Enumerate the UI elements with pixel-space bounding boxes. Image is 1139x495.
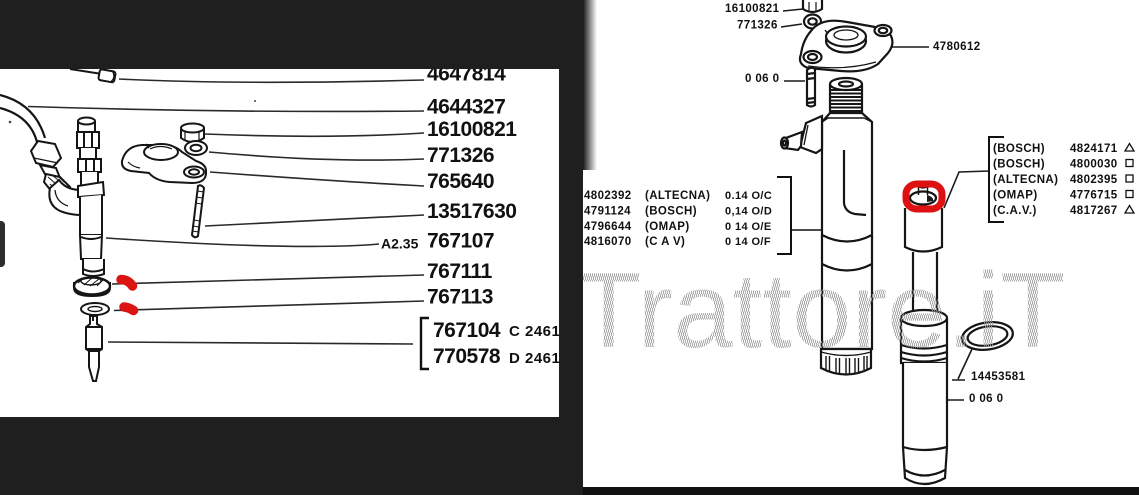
svg-text:771326: 771326	[427, 144, 494, 167]
svg-text:767104: 767104	[433, 319, 501, 342]
svg-text:4816070: 4816070	[584, 236, 632, 248]
svg-text:(C.A.V.): (C.A.V.)	[993, 205, 1037, 217]
svg-text:(ALTECNA): (ALTECNA)	[993, 174, 1058, 186]
svg-text:16100821: 16100821	[725, 3, 780, 15]
svg-text:767111: 767111	[427, 260, 493, 283]
svg-text:4802395: 4802395	[1070, 174, 1118, 186]
svg-text:(OMAP): (OMAP)	[993, 190, 1038, 202]
svg-text:4780612: 4780612	[933, 41, 981, 53]
svg-text:0 06 0: 0 06 0	[745, 73, 779, 85]
svg-text:(BOSCH): (BOSCH)	[993, 143, 1045, 155]
svg-text:(C A V): (C A V)	[645, 236, 685, 248]
svg-text:(OMAP): (OMAP)	[645, 221, 690, 233]
svg-text:13517630: 13517630	[427, 200, 516, 223]
svg-text:(BOSCH): (BOSCH)	[993, 159, 1045, 171]
svg-text:0.14 O/C: 0.14 O/C	[725, 190, 772, 202]
svg-text:C 2461: C 2461	[509, 323, 559, 340]
svg-text:0,14 O/D: 0,14 O/D	[725, 205, 772, 217]
svg-text:4800030: 4800030	[1070, 159, 1118, 171]
svg-text:A2.35: A2.35	[381, 236, 419, 252]
svg-text:767107: 767107	[427, 230, 494, 253]
svg-text:4802392: 4802392	[584, 190, 632, 202]
svg-text:16100821: 16100821	[427, 118, 517, 141]
svg-text:765640: 765640	[427, 170, 494, 193]
svg-text:Trattore.iT: Trattore.iT	[583, 250, 1066, 370]
svg-text:767113: 767113	[427, 286, 493, 309]
svg-text:4776715: 4776715	[1070, 190, 1118, 202]
svg-text:14453581: 14453581	[971, 371, 1026, 383]
svg-text:0 14 O/F: 0 14 O/F	[725, 236, 771, 248]
svg-text:770578: 770578	[433, 345, 501, 368]
svg-text:D 2461: D 2461	[509, 350, 559, 367]
svg-text:4647814: 4647814	[427, 69, 506, 86]
svg-text:4824171: 4824171	[1070, 143, 1118, 155]
svg-text:0 14 O/E: 0 14 O/E	[725, 221, 772, 233]
svg-text:(ALTECNA): (ALTECNA)	[645, 190, 710, 202]
svg-text:4796644: 4796644	[584, 221, 632, 233]
svg-text:771326: 771326	[737, 20, 778, 32]
svg-text:4644327: 4644327	[427, 96, 505, 119]
svg-text:0 06 0: 0 06 0	[969, 393, 1003, 405]
svg-text:4791124: 4791124	[584, 205, 631, 217]
svg-text:(BOSCH): (BOSCH)	[645, 205, 697, 217]
svg-text:4817267: 4817267	[1070, 205, 1118, 217]
